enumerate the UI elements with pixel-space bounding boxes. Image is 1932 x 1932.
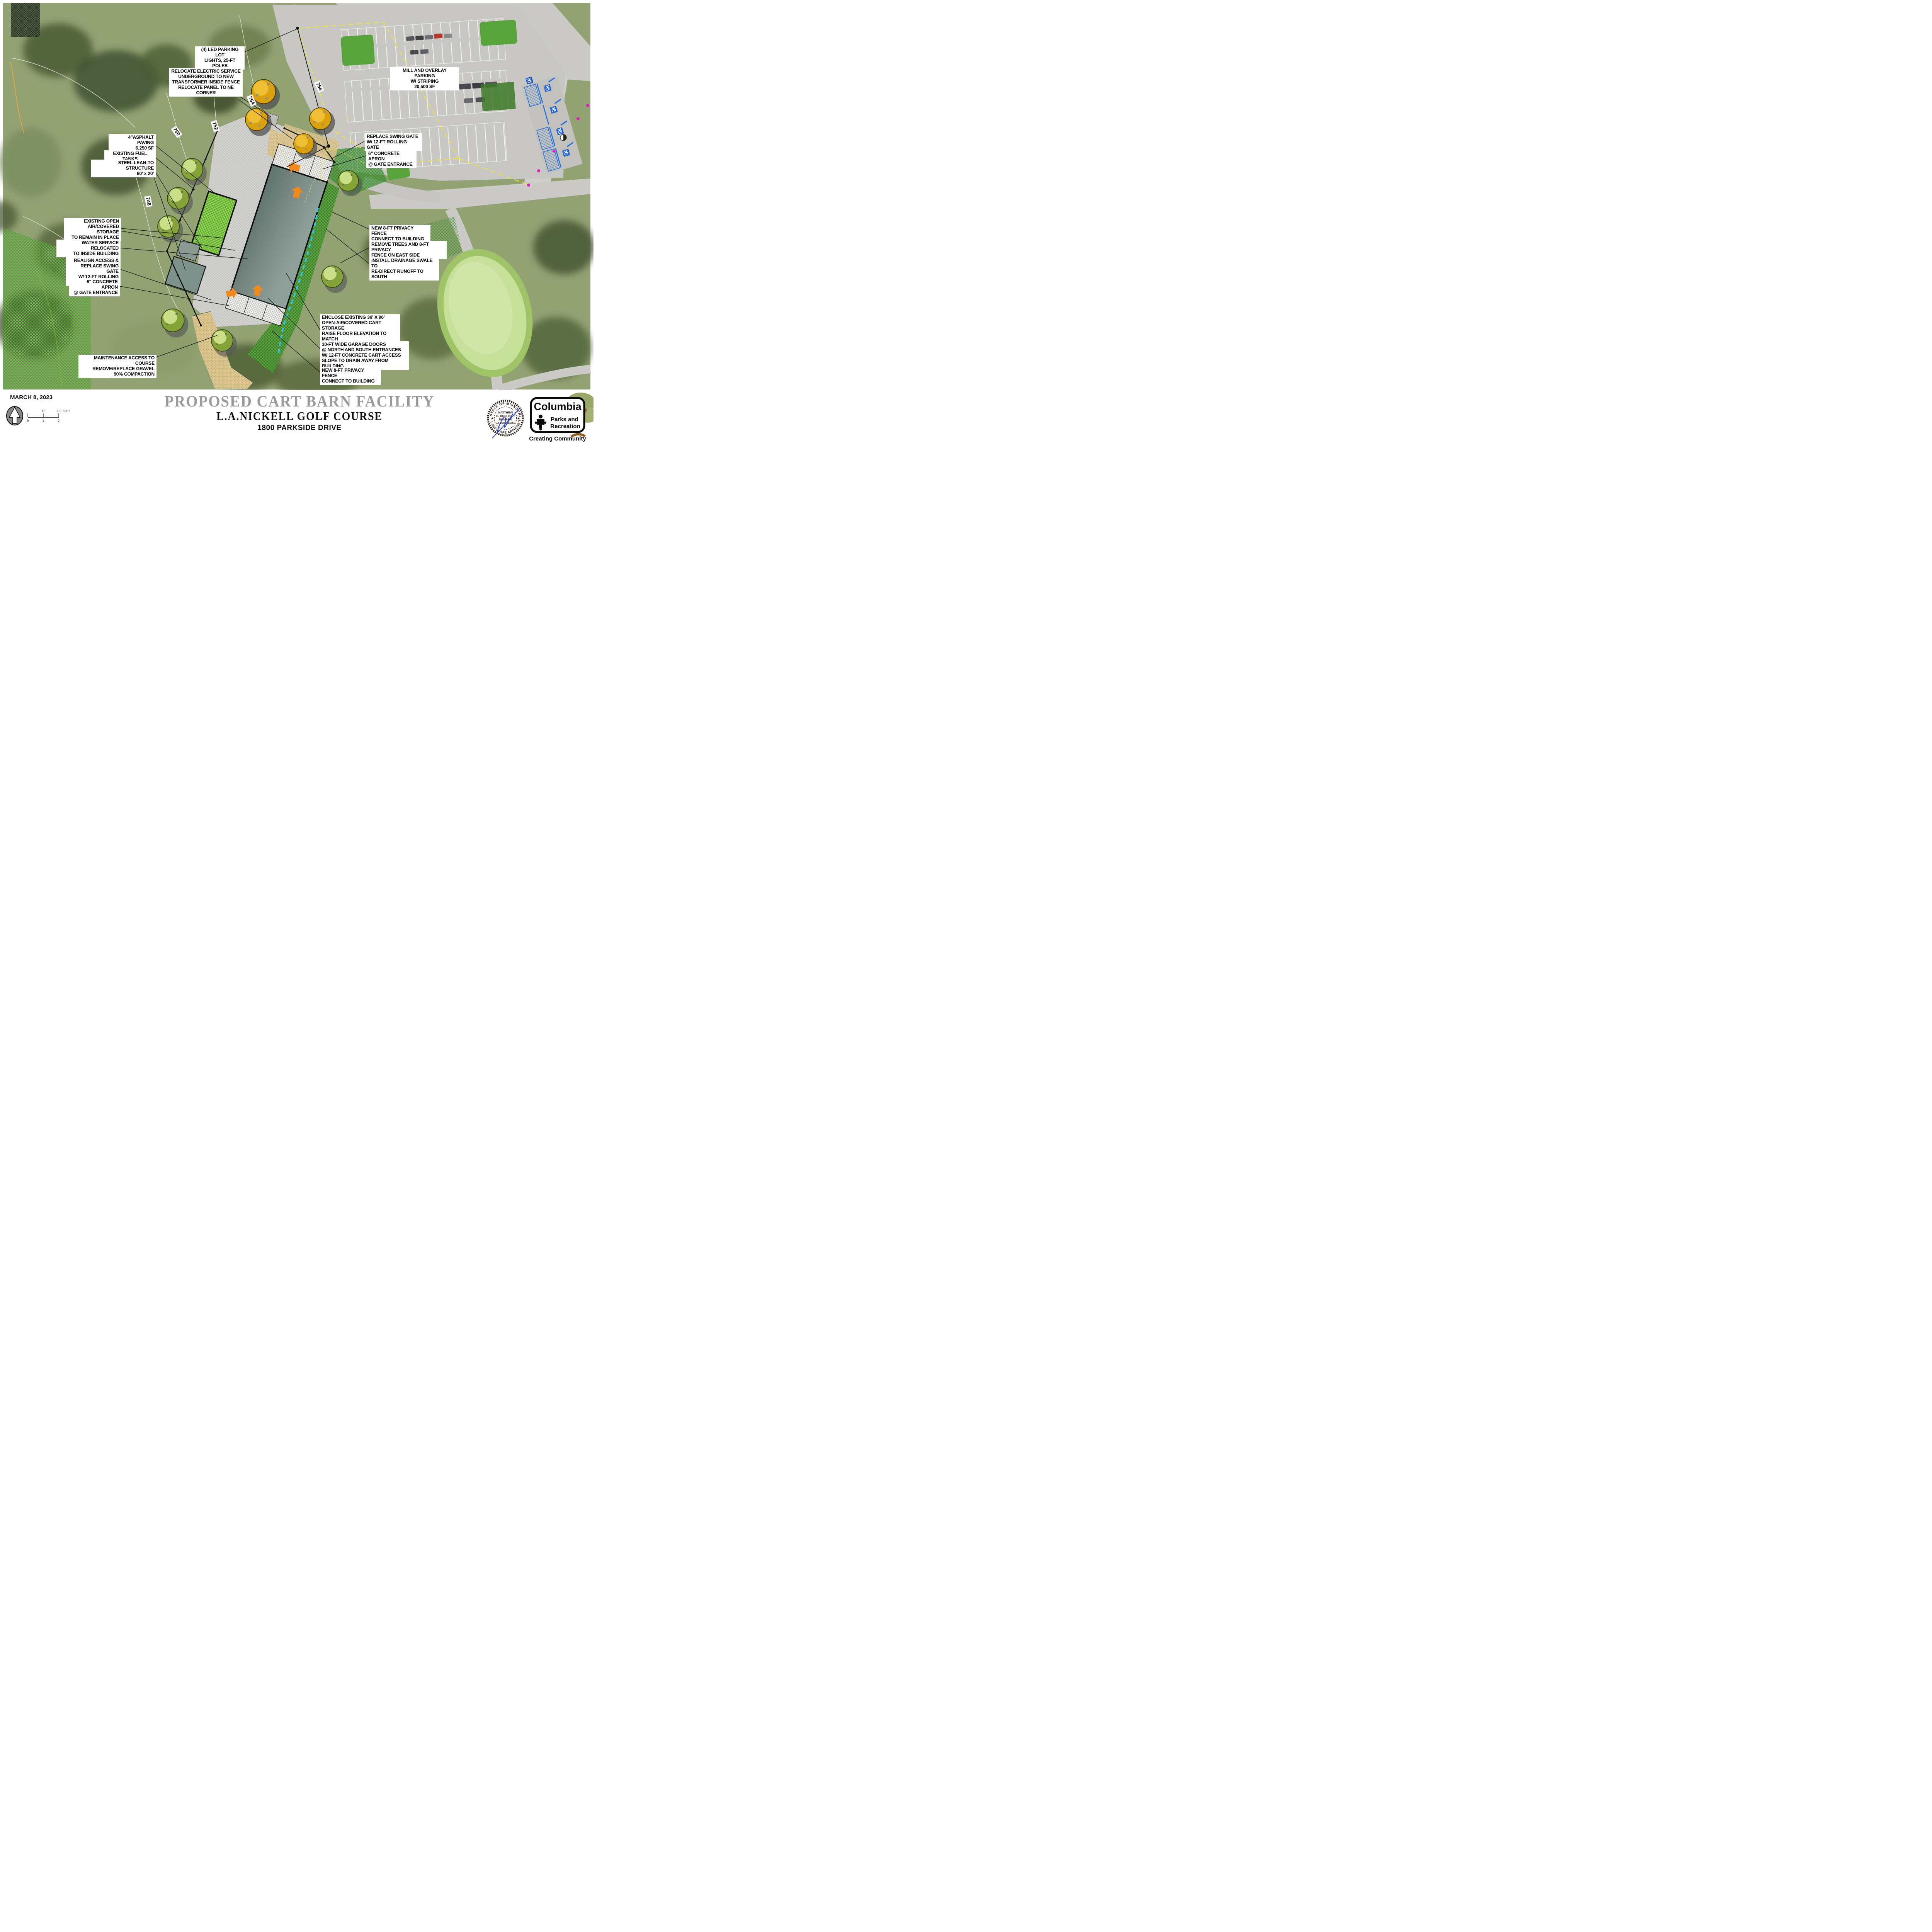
- svg-text:Columbia: Columbia: [534, 401, 582, 412]
- star-icon: ★: [491, 417, 494, 420]
- svg-text:2: 2: [58, 419, 60, 423]
- callout-open-air-storage: EXISTING OPEN AIR/COVERED STORAGE TO REM…: [64, 218, 121, 241]
- svg-text:0: 0: [27, 419, 29, 423]
- svg-text:Parks and: Parks and: [551, 416, 578, 423]
- plan-title: PROPOSED CART BARN FACILITY: [125, 393, 474, 409]
- callout-water-service: WATER SERVICE RELOCATED TO INSIDE BUILDI…: [56, 240, 121, 257]
- title-block: PROPOSED CART BARN FACILITY L.A.NICKELL …: [116, 393, 483, 432]
- svg-text:1: 1: [42, 419, 44, 423]
- course-name: L.A.NICKELL GOLF COURSE: [134, 410, 465, 423]
- callout-privacy-fence-ne: NEW 8-FT PRIVACY FENCE CONNECT TO BUILDI…: [369, 225, 430, 243]
- svg-text:20: 20: [56, 410, 61, 413]
- site-plan-sheet: ♿ ♿ ♿ ♿ ♿: [0, 0, 594, 445]
- svg-text:Creating Community: Creating Community: [529, 435, 586, 442]
- callout-maintenance-access: MAINTENANCE ACCESS TO COURSE REMOVE/REPL…: [78, 355, 156, 378]
- architect-seal: STATE OF MISSOURI LANDSCAPE ARCHITECT ★ …: [488, 401, 523, 438]
- callout-apron-north: 6" CONCRETE APRON @ GATE ENTRANCE: [366, 150, 417, 168]
- plan-date: MARCH 8, 2023: [10, 394, 53, 401]
- site-plan-drawing: ♿ ♿ ♿ ♿ ♿: [0, 0, 594, 390]
- svg-text:10: 10: [41, 410, 46, 413]
- north-arrow-icon: [7, 406, 23, 425]
- callout-lean-to: STEEL LEAN-TO STRUCTURE 60' x 20': [91, 160, 156, 177]
- svg-text:MATTHEW: MATTHEW: [498, 411, 513, 414]
- callout-privacy-fence-south: NEW 8-FT PRIVACY FENCE CONNECT TO BUILDI…: [320, 367, 381, 385]
- logo-and-seal: STATE OF MISSOURI LANDSCAPE ARCHITECT ★ …: [485, 389, 594, 445]
- parks-rec-logo: Columbia Parks and Recreation Creating C…: [529, 398, 586, 442]
- light-pole-dot: [327, 145, 330, 148]
- callout-electric-service: RELOCATE ELECTRIC SERVICE UNDERGROUND TO…: [169, 68, 243, 97]
- tree-hatch-patch: [11, 3, 40, 37]
- callout-asphalt-paving: 4"ASPHALT PAVING 6,250 SF: [109, 134, 156, 152]
- callout-remove-trees: REMOVE TREES AND 8-FT PRIVACY FENCE ON E…: [369, 241, 447, 259]
- north-arrow-and-scale: 10 20 FEET 0 1 2: [4, 402, 81, 429]
- callout-drainage-swale: INSTALL DRAINAGE SWALE TO RE-DIRECT RUNO…: [369, 257, 439, 281]
- star-icon: ★: [517, 417, 520, 420]
- callout-swing-gate-north: REPLACE SWING GATE W/ 12-FT ROLLING GATE: [365, 133, 422, 151]
- scale-bar: 10 20 FEET 0 1 2: [27, 410, 70, 423]
- address: 1800 PARKSIDE DRIVE: [116, 424, 483, 432]
- manhole-symbol: [560, 134, 566, 141]
- callout-led-lights: (4) LED PARKING LOT LIGHTS, 25-FT POLES: [195, 46, 245, 70]
- svg-text:Recreation: Recreation: [550, 423, 580, 430]
- callout-mill-overlay: MILL AND OVERLAY PARKING W/ STRIPING 20,…: [390, 67, 459, 90]
- callout-garage-doors: 10-FT WIDE GARAGE DOORS @ NORTH AND SOUT…: [320, 341, 409, 370]
- callout-apron-south: 6" CONCRETE APRON @ GATE ENTRANCE: [69, 279, 120, 296]
- svg-text:FEET: FEET: [63, 410, 70, 413]
